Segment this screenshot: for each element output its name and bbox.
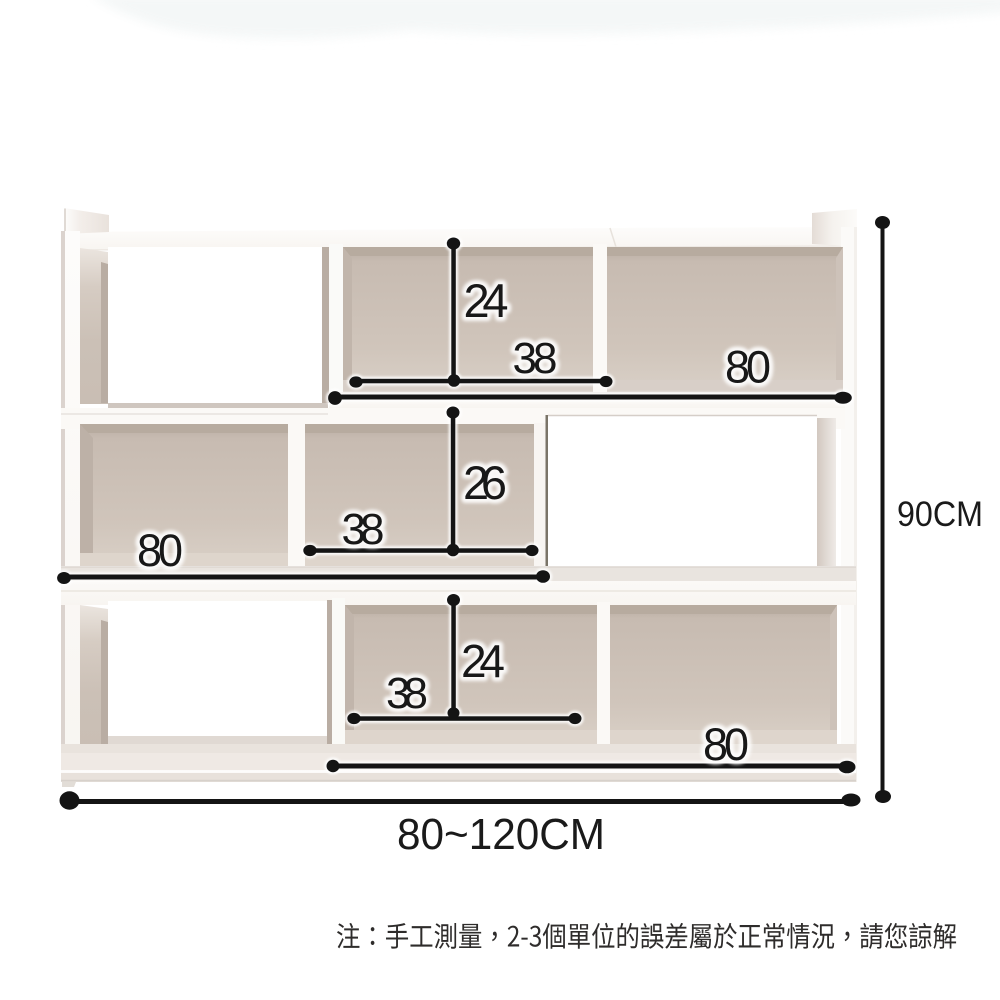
svg-text:24: 24 bbox=[461, 635, 505, 687]
svg-text:90CM: 90CM bbox=[897, 495, 983, 534]
svg-text:80: 80 bbox=[725, 342, 771, 393]
svg-text:26: 26 bbox=[463, 456, 507, 509]
svg-text:38: 38 bbox=[513, 334, 558, 383]
svg-text:38: 38 bbox=[342, 505, 385, 554]
svg-text:80: 80 bbox=[137, 525, 183, 576]
svg-text:38: 38 bbox=[386, 669, 428, 718]
svg-text:80~120CM: 80~120CM bbox=[397, 810, 605, 859]
svg-text:24: 24 bbox=[464, 274, 509, 327]
svg-text:80: 80 bbox=[703, 719, 749, 770]
